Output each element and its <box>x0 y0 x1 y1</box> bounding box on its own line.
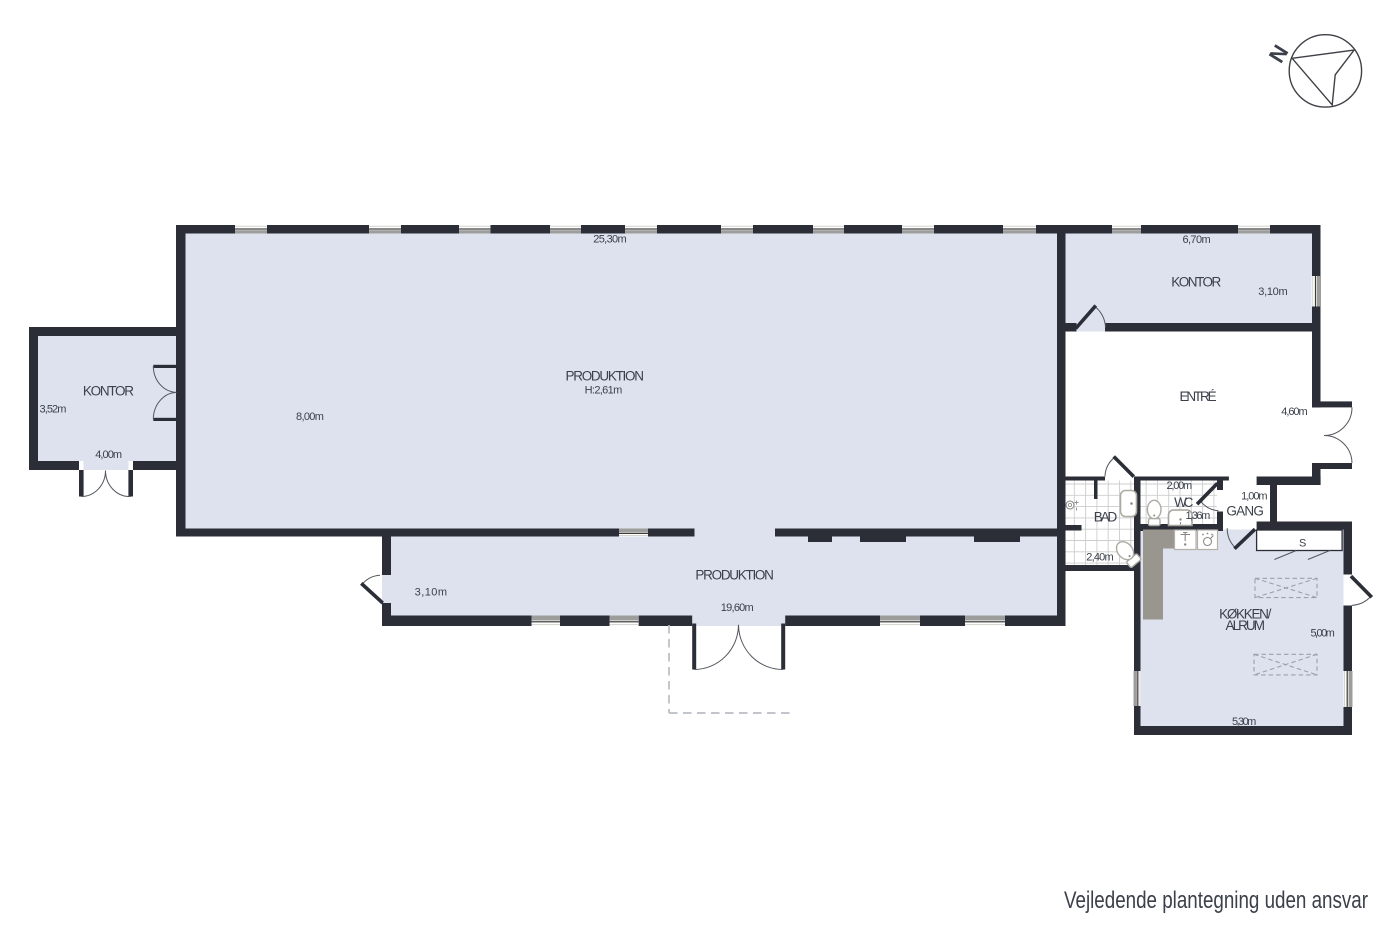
svg-text:4,60m: 4,60m <box>1281 406 1308 418</box>
svg-text:BAD: BAD <box>1094 510 1118 525</box>
svg-text:H:2,61m: H:2,61m <box>585 384 623 396</box>
svg-text:5,30m: 5,30m <box>1232 716 1257 728</box>
svg-text:3,52m: 3,52m <box>40 404 67 416</box>
svg-text:WC: WC <box>1174 495 1194 510</box>
svg-text:2,00m: 2,00m <box>1167 480 1193 492</box>
svg-text:GANG: GANG <box>1226 504 1264 519</box>
svg-text:19,60m: 19,60m <box>721 602 754 614</box>
svg-text:KONTOR: KONTOR <box>1171 275 1222 290</box>
svg-text:3,10m: 3,10m <box>1258 286 1288 298</box>
svg-text:KONTOR: KONTOR <box>83 383 135 398</box>
svg-text:1,36m: 1,36m <box>1185 510 1210 522</box>
svg-text:S: S <box>1299 538 1306 550</box>
svg-text:4,00m: 4,00m <box>95 449 122 461</box>
svg-text:ALRUM: ALRUM <box>1226 618 1266 633</box>
svg-text:1,00m: 1,00m <box>1241 490 1268 502</box>
svg-text:5,00m: 5,00m <box>1310 627 1335 639</box>
svg-text:Vejledende plantegning uden an: Vejledende plantegning uden ansvar <box>1064 887 1368 914</box>
svg-text:25,30m: 25,30m <box>593 234 627 246</box>
svg-text:PRODUKTION: PRODUKTION <box>695 567 774 582</box>
svg-text:3,10m: 3,10m <box>415 587 448 599</box>
svg-text:8,00m: 8,00m <box>296 411 324 423</box>
svg-text:2,40m: 2,40m <box>1086 552 1114 564</box>
svg-text:ENTRÉ: ENTRÉ <box>1180 389 1218 404</box>
svg-text:PRODUKTION: PRODUKTION <box>566 369 645 384</box>
svg-text:6,70m: 6,70m <box>1182 234 1210 246</box>
